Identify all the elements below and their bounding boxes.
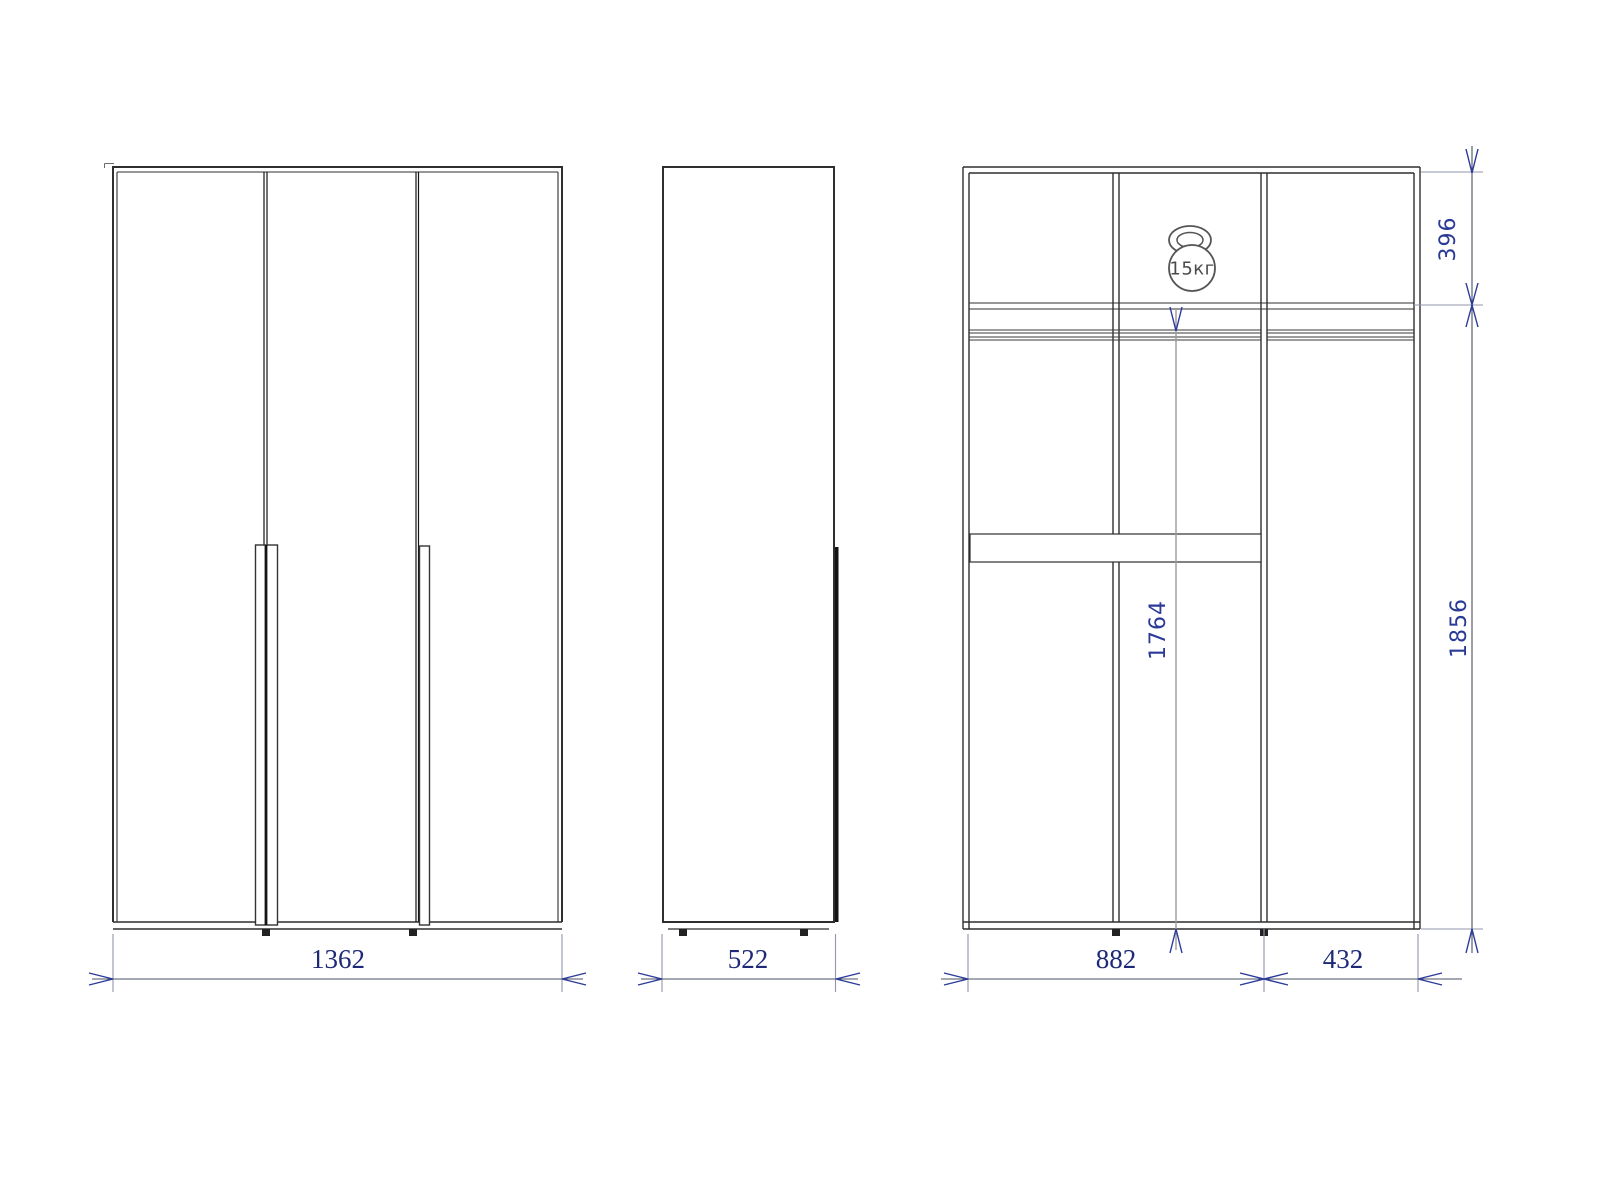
interior-height-label: 1764 <box>1146 600 1171 660</box>
side-view-carcass-outline <box>663 167 834 922</box>
side-view-bottom-band <box>663 922 834 929</box>
side-view-handle-profile <box>835 547 839 922</box>
dimensions <box>89 146 1483 992</box>
front-view-feet <box>262 929 417 936</box>
front-view-carcass-outline <box>113 167 562 922</box>
front-view-bottom-band <box>113 922 562 929</box>
technical-drawing-canvas: 15кг 1362 522 882 432 396 1856 1764 <box>0 0 1600 1200</box>
side-view-feet <box>679 929 808 936</box>
front-view-door-gap-right <box>416 172 419 922</box>
section-view-divider-2 <box>1261 173 1267 922</box>
section-left-bay-label: 882 <box>1096 944 1137 974</box>
side-view <box>663 167 839 936</box>
section-view-top-shelf <box>969 303 1414 309</box>
front-view-inner-edges <box>117 172 558 922</box>
section-view-middle-band <box>970 534 1261 562</box>
weight-limit-icon: 15кг <box>1169 226 1215 291</box>
front-view-handle-right <box>420 546 430 925</box>
side-depth-label: 522 <box>728 944 769 974</box>
section-view: 15кг <box>963 167 1420 936</box>
dimension-arrows <box>89 149 1478 985</box>
body-height-label: 1856 <box>1447 598 1472 658</box>
wardrobe-technical-drawing: 15кг 1362 522 882 432 396 1856 1764 <box>0 0 1600 1200</box>
section-right-bay-label: 432 <box>1323 944 1364 974</box>
section-view-feet <box>1112 929 1268 936</box>
dimension-lines <box>92 146 1472 979</box>
extension-lines <box>113 172 1483 992</box>
front-width-label: 1362 <box>311 944 365 974</box>
load-rating-label: 15кг <box>1169 259 1214 280</box>
section-view-hanging-rail <box>969 330 1414 340</box>
top-compartment-height-label: 396 <box>1436 217 1461 262</box>
front-view <box>105 164 563 937</box>
